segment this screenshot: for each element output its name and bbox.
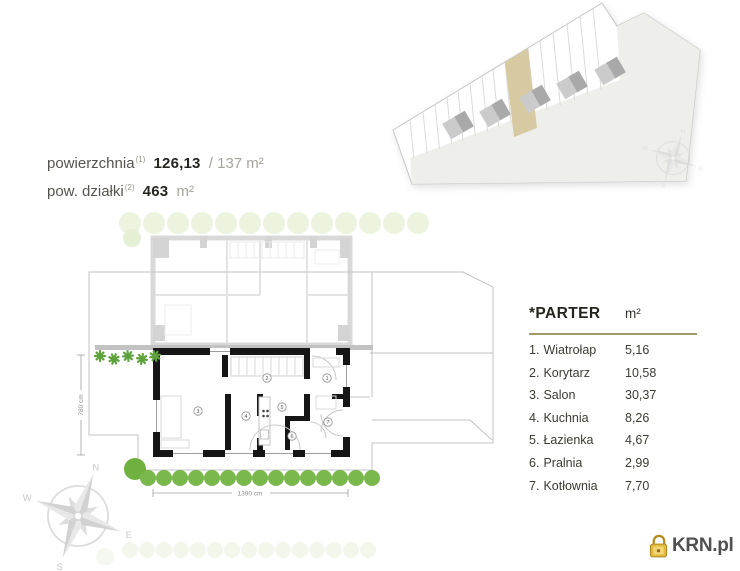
plot-area-label: pow. działki (47, 183, 124, 200)
plot-inner-lines (345, 272, 493, 440)
usable-area-line: powierzchnia(1) 126,13 / 137 m² (47, 148, 264, 176)
compass-rose-icon: N E S W (22, 452, 138, 571)
logo-text: KRN.pl (672, 535, 734, 557)
krn-logo: KRN.pl (648, 532, 734, 559)
svg-text:7: 7 (326, 420, 329, 426)
compass-w-label: W (23, 493, 32, 504)
svg-text:N: N (681, 129, 685, 135)
room-name: Korytarz (543, 366, 590, 380)
room-marker: 1 (323, 374, 331, 382)
floor-plan-page: { "header": { "area_label": "powierzchni… (0, 0, 740, 571)
room-area: 30,37 (625, 388, 697, 402)
area-summary: powierzchnia(1) 126,13 / 137 m² pow. dzi… (47, 148, 264, 204)
room-marker: 5 (278, 403, 286, 411)
svg-text:S: S (661, 184, 665, 190)
plot-area-value: 463 (143, 183, 169, 200)
height-dimension-label: 780 cm (78, 394, 85, 415)
faded-tree-row-bottom (96, 542, 376, 565)
room-number: 5. (529, 433, 539, 447)
room-area: 5,16 (625, 343, 697, 357)
svg-text:E: E (699, 166, 703, 172)
room-number: 2. (529, 366, 539, 380)
usable-area-label: powierzchnia (47, 155, 135, 172)
room-area: 2,99 (625, 456, 697, 470)
room-area: 4,67 (625, 433, 697, 447)
room-marker: 3 (194, 407, 202, 415)
legend-row: 7.Kotłownia 7,70 (529, 479, 697, 502)
legend-unit-header: m² (625, 306, 697, 321)
total-area-value: / 137 m² (209, 155, 264, 172)
room-marker: 7 (324, 418, 332, 426)
legend-row: 1.Wiatrołap 5,16 (529, 343, 697, 366)
room-legend: *PARTER m² 1.Wiatrołap 5,16 2.Korytarz 1… (529, 305, 697, 501)
svg-text:4: 4 (244, 414, 247, 420)
legend-row: 3.Salon 30,37 (529, 388, 697, 411)
svg-text:1: 1 (325, 376, 328, 382)
legend-row: 5.Łazienka 4,67 (529, 433, 697, 456)
padlock-icon (648, 532, 669, 559)
room-number: 4. (529, 411, 539, 425)
compass-e-label: E (126, 530, 132, 541)
room-name: Kuchnia (543, 411, 588, 425)
plot-area-unit: m² (176, 183, 194, 200)
compass-s-label: S (56, 562, 62, 571)
room-marker: 6 (288, 432, 296, 440)
width-dimension-label: 1390 cm (238, 491, 263, 498)
room-number: 7. (529, 479, 539, 493)
compass-n-label: N (92, 463, 99, 474)
footnote-2: (2) (125, 183, 135, 192)
room-name: Kotłownia (543, 479, 597, 493)
room-marker: 2 (263, 374, 271, 382)
legend-divider (529, 333, 697, 335)
house-walls: 1 2 3 4 5 6 7 (153, 348, 350, 457)
svg-text:3: 3 (196, 409, 199, 415)
upper-floor-ghost-plan (153, 236, 350, 345)
legend-row: 2.Korytarz 10,58 (529, 366, 697, 389)
legend-title: *PARTER (529, 305, 600, 323)
svg-text:6: 6 (290, 434, 293, 440)
bush-row (95, 349, 162, 365)
room-area: 10,58 (625, 366, 697, 380)
room-area: 7,70 (625, 479, 697, 493)
svg-text:5: 5 (280, 405, 283, 411)
tree-row (124, 458, 380, 486)
room-name: Pralnia (543, 456, 582, 470)
plot-area-line: pow. działki(2) 463 m² (47, 176, 264, 204)
footnote-1: (1) (136, 155, 146, 164)
room-number: 1. (529, 343, 539, 357)
usable-area-value: 126,13 (154, 155, 201, 172)
room-number: 3. (529, 388, 539, 402)
room-name: Wiatrołap (543, 343, 596, 357)
room-name: Salon (543, 388, 575, 402)
legend-row: 6.Pralnia 2,99 (529, 456, 697, 479)
legend-row: 4.Kuchnia 8,26 (529, 411, 697, 434)
room-area: 8,26 (625, 411, 697, 425)
svg-text:2: 2 (265, 376, 268, 382)
room-marker: 4 (242, 412, 250, 420)
site-plan: N E S W (390, 0, 740, 200)
room-number: 6. (529, 456, 539, 470)
svg-text:W: W (642, 146, 648, 152)
room-name: Łazienka (543, 433, 593, 447)
legend-header: *PARTER m² (529, 305, 697, 327)
kitchen-fixtures (259, 397, 270, 445)
